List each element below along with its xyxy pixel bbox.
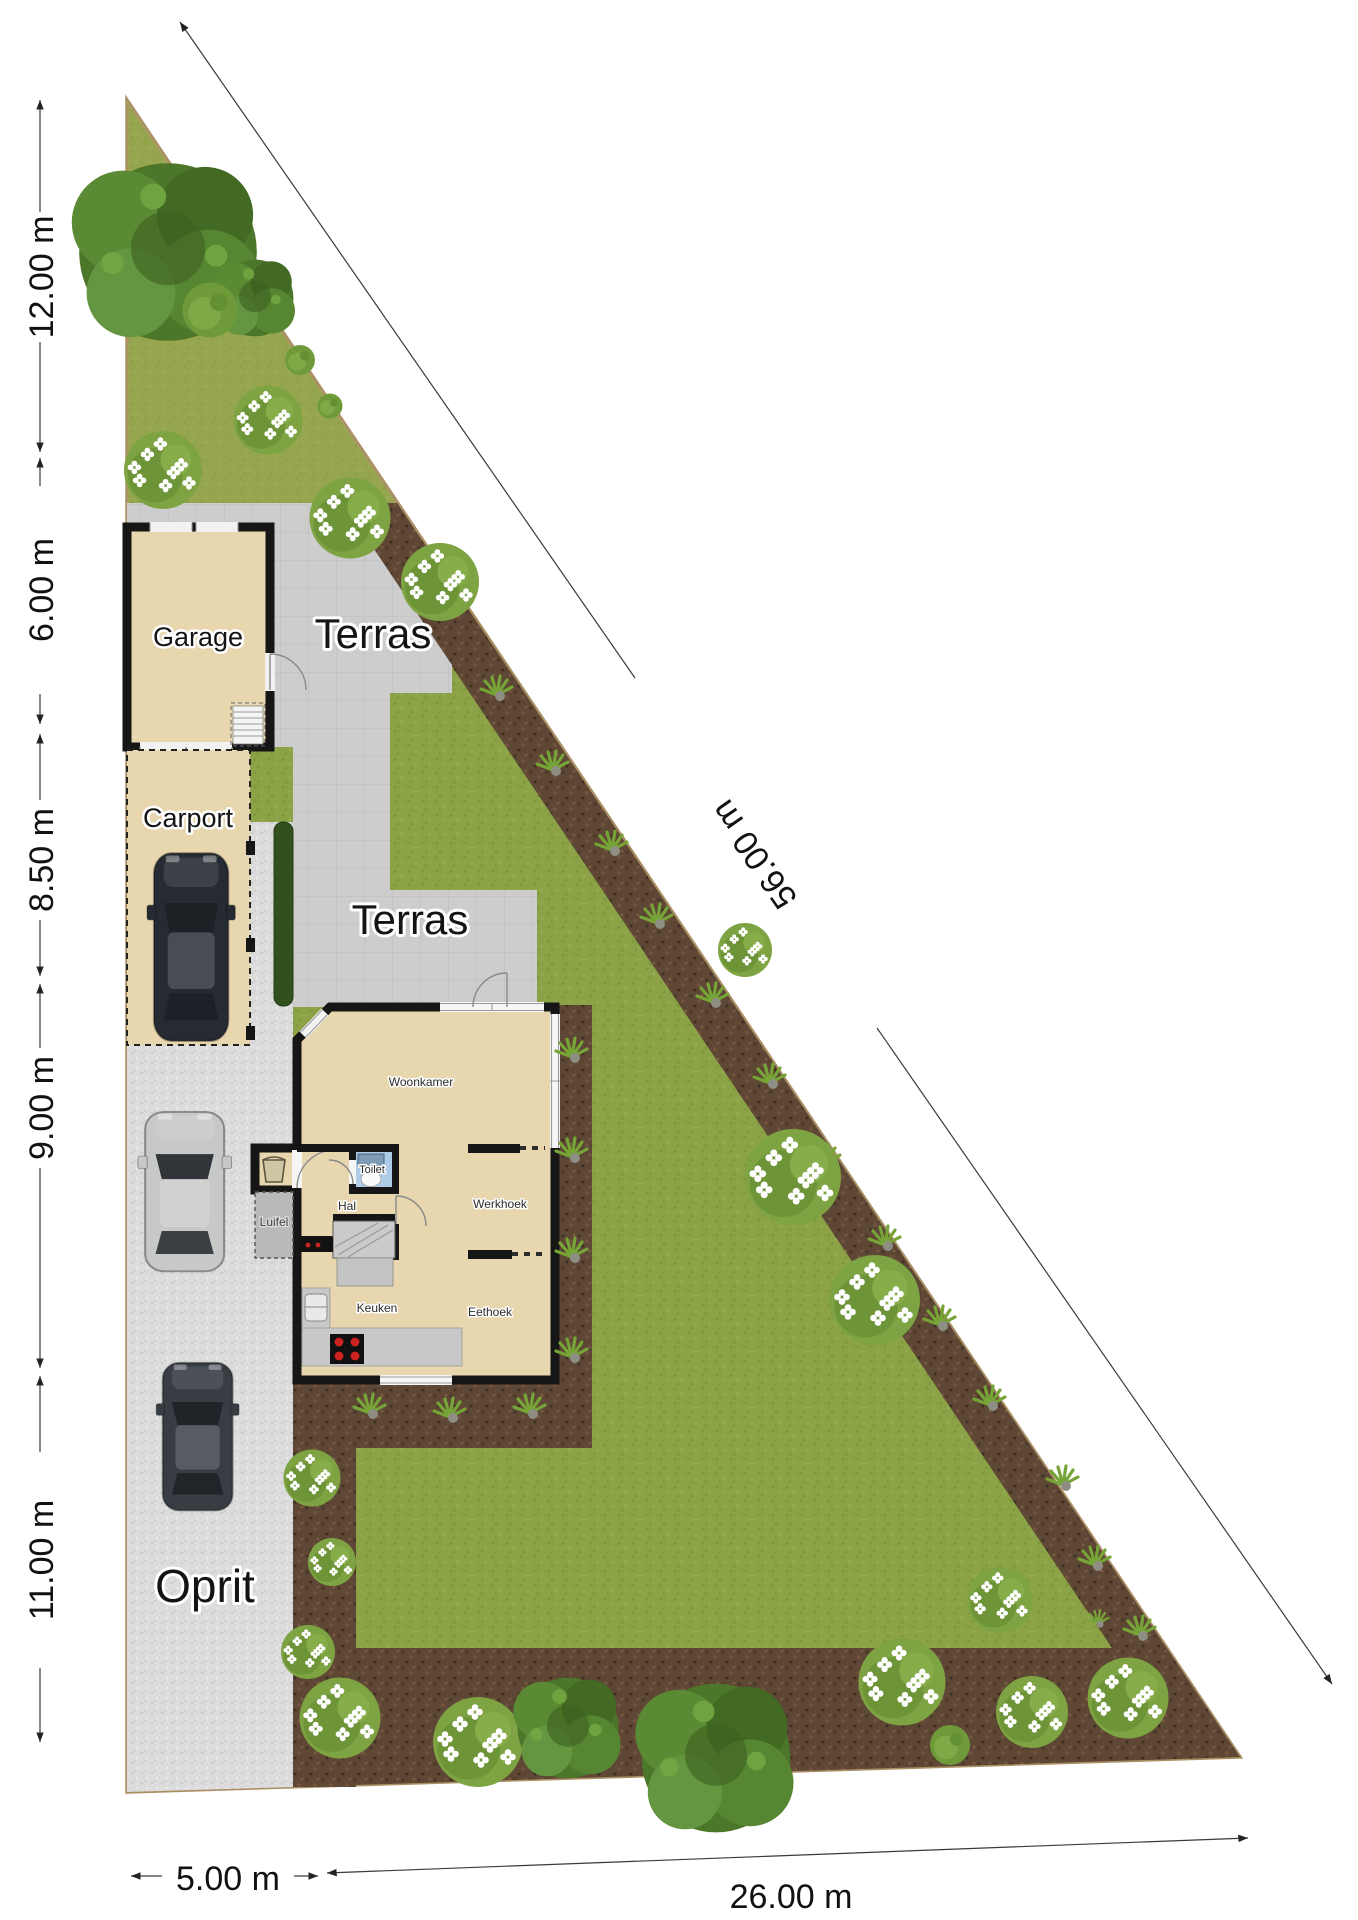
bush [318, 394, 343, 419]
cooktop [330, 1334, 364, 1364]
carport-post [246, 1026, 255, 1040]
car-dark [156, 1363, 239, 1511]
hal-label: Hal [338, 1199, 356, 1213]
flower-bush [859, 1639, 946, 1726]
garage-door-panel [150, 522, 192, 532]
tree [513, 1678, 620, 1779]
dim-8_5m: 8.50 m [23, 808, 61, 912]
garage-stair [231, 703, 265, 746]
site-plan: Garage Terras Carport Terras Oprit Woonk… [0, 0, 1358, 1920]
werkhoek-wall [468, 1250, 512, 1259]
carport-post [246, 938, 255, 952]
garage-door-panel [196, 522, 238, 532]
flower-bush [718, 923, 772, 977]
carport-post [246, 841, 255, 855]
tree [635, 1684, 793, 1833]
flower-bush [967, 1567, 1033, 1633]
dim-11m: 11.00 m [23, 1500, 61, 1620]
dim-6m: 6.00 m [23, 538, 61, 642]
interior-wall [297, 1144, 399, 1152]
dim-56m: 56.00 m [704, 793, 805, 916]
woonkamer-label: Woonkamer [389, 1075, 453, 1089]
flower-bush [234, 386, 303, 455]
sink [305, 1294, 327, 1321]
car-carport [147, 853, 235, 1041]
flower-bush [1088, 1658, 1169, 1739]
werkhoek-label: Werkhoek [473, 1197, 528, 1211]
hedge [274, 822, 293, 1006]
storage-basket-icon [263, 1157, 285, 1182]
house-outline [255, 1007, 555, 1380]
flower-bush [310, 478, 391, 559]
dim-12m: 12.00 m [23, 216, 61, 339]
toilet-wall [349, 1187, 399, 1194]
house [255, 973, 560, 1385]
dim-9m: 9.00 m [23, 1056, 61, 1160]
garage-label: Garage [153, 622, 243, 652]
werkhoek-wall [468, 1144, 520, 1153]
oprit-label: Oprit [155, 1560, 255, 1612]
carport-label: Carport [143, 803, 234, 833]
terras-lower-label: Terras [352, 896, 469, 943]
terras-upper-label: Terras [315, 610, 432, 657]
flower-bush [745, 1129, 841, 1225]
toilet-wall [392, 1144, 399, 1194]
luifel-label: Luifel [260, 1215, 289, 1229]
eethoek-label: Eethoek [468, 1305, 513, 1319]
car-silver [138, 1112, 232, 1271]
flower-bush [281, 1625, 335, 1679]
keuken-label: Keuken [357, 1301, 398, 1315]
flower-bush [308, 1538, 356, 1586]
interior-wall [333, 1214, 395, 1221]
flower-bush [996, 1676, 1068, 1748]
bush [183, 283, 238, 338]
bush [285, 345, 315, 375]
stair [333, 1221, 395, 1286]
bush [930, 1725, 970, 1765]
flower-bush [433, 1697, 523, 1787]
dim-5m: 5.00 m [176, 1860, 280, 1898]
flower-bush [284, 1450, 341, 1507]
dimension-line [327, 1838, 1248, 1873]
flower-bush [830, 1255, 920, 1345]
counter [302, 1328, 462, 1366]
toilet-label: Toilet [359, 1164, 385, 1176]
site-plan-page: Garage Terras Carport Terras Oprit Woonk… [0, 0, 1358, 1920]
dim-26m: 26.00 m [730, 1878, 853, 1916]
flower-bush [124, 431, 202, 509]
flower-bush [300, 1678, 381, 1759]
